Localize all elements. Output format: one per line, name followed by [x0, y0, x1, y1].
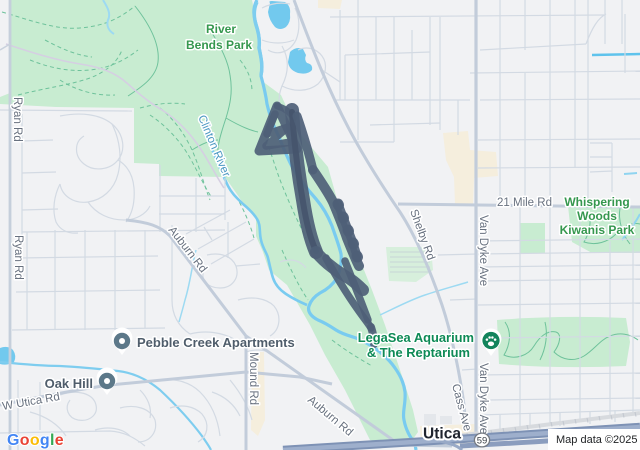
svg-text:LegaSea Aquarium: LegaSea Aquarium: [358, 330, 474, 345]
svg-text:Ryan Rd: Ryan Rd: [12, 235, 24, 280]
svg-text:Bends Park: Bends Park: [186, 38, 252, 52]
svg-text:Whispering: Whispering: [564, 195, 629, 209]
svg-text:Van Dyke Ave: Van Dyke Ave: [477, 363, 489, 434]
svg-text:Van Dyke Ave: Van Dyke Ave: [477, 215, 489, 286]
svg-text:Ryan Rd: Ryan Rd: [11, 97, 23, 142]
svg-text:River: River: [206, 22, 236, 36]
svg-text:Map data ©2025: Map data ©2025: [556, 434, 638, 446]
svg-text:59: 59: [477, 435, 488, 446]
svg-text:Kiwanis Park: Kiwanis Park: [560, 223, 635, 237]
svg-text:Utica: Utica: [423, 426, 461, 443]
svg-text:Mound Rd: Mound Rd: [247, 352, 259, 405]
svg-text:Pebble Creek Apartments: Pebble Creek Apartments: [137, 335, 295, 350]
svg-text:Woods: Woods: [577, 209, 617, 223]
svg-text:& The Reptarium: & The Reptarium: [367, 345, 470, 360]
svg-text:Oak Hill: Oak Hill: [45, 376, 93, 391]
svg-text:21 Mile Rd: 21 Mile Rd: [497, 197, 552, 209]
svg-text:Google: Google: [7, 432, 64, 449]
